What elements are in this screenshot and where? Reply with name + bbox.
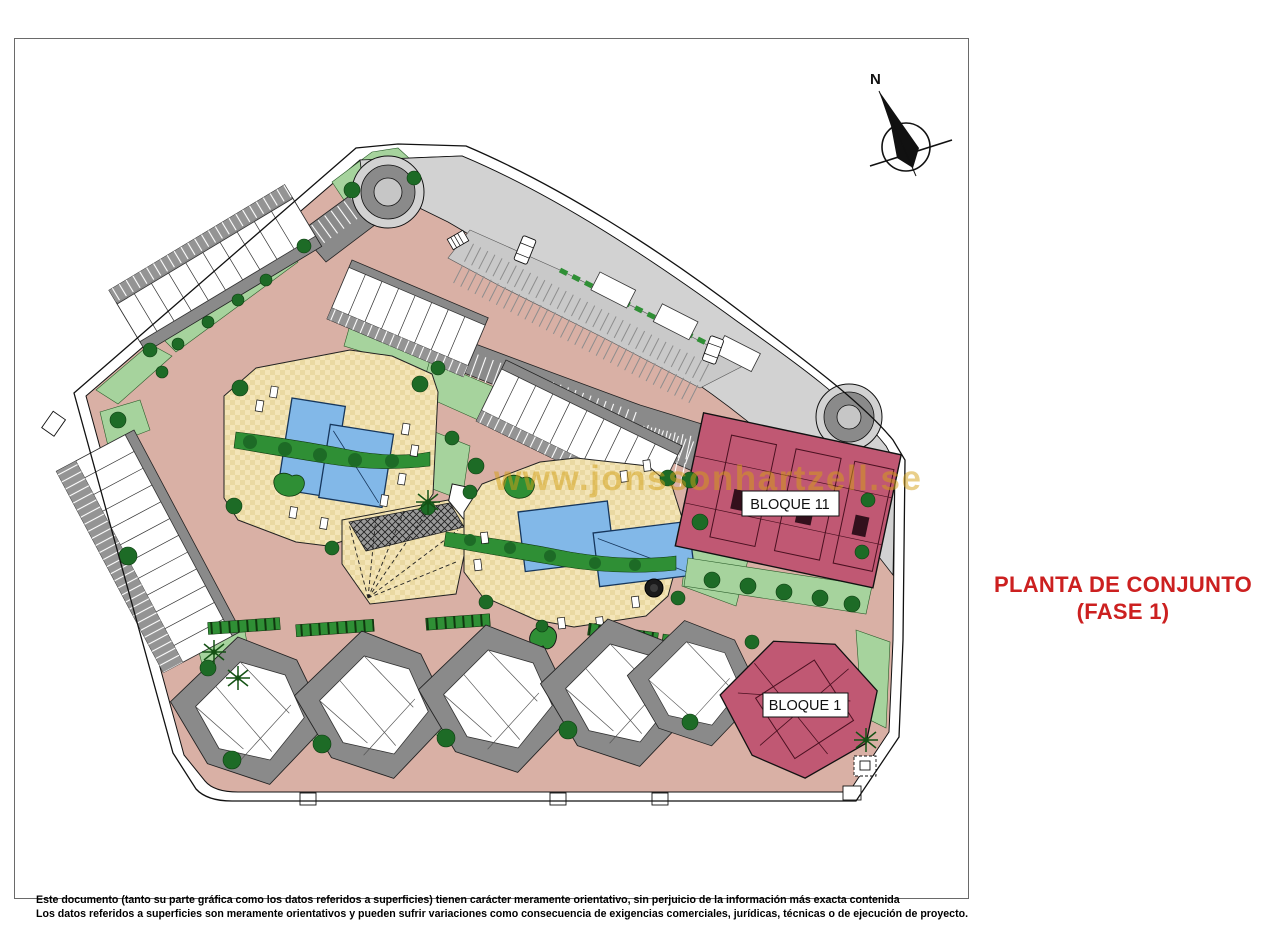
svg-text:BLOQUE 11: BLOQUE 11 <box>750 497 830 513</box>
svg-text:BLOQUE 1: BLOQUE 1 <box>769 698 842 714</box>
bloque1-label: BLOQUE 1 <box>763 693 848 717</box>
site-plan: BLOQUE 11 BLOQUE 1 www.jonssonhartzell.s… <box>0 0 1280 933</box>
title-line-1: PLANTA DE CONJUNTO <box>983 571 1263 598</box>
sheet: BLOQUE 11 BLOQUE 1 www.jonssonhartzell.s… <box>0 0 1280 933</box>
drawing-title: PLANTA DE CONJUNTO (FASE 1) <box>983 571 1263 625</box>
disclaimer-line-2: Los datos referidos a superficies son me… <box>36 908 1256 922</box>
title-line-2: (FASE 1) <box>983 598 1263 625</box>
svg-text:N: N <box>870 71 881 88</box>
north-arrow-icon: N <box>870 71 952 176</box>
disclaimer-line-1: Este documento (tanto su parte gráfica c… <box>36 894 1256 908</box>
roundabout-left <box>352 156 424 228</box>
disclaimer: Este documento (tanto su parte gráfica c… <box>36 894 1256 921</box>
watermark: www.jonssonhartzell.se <box>493 459 922 498</box>
